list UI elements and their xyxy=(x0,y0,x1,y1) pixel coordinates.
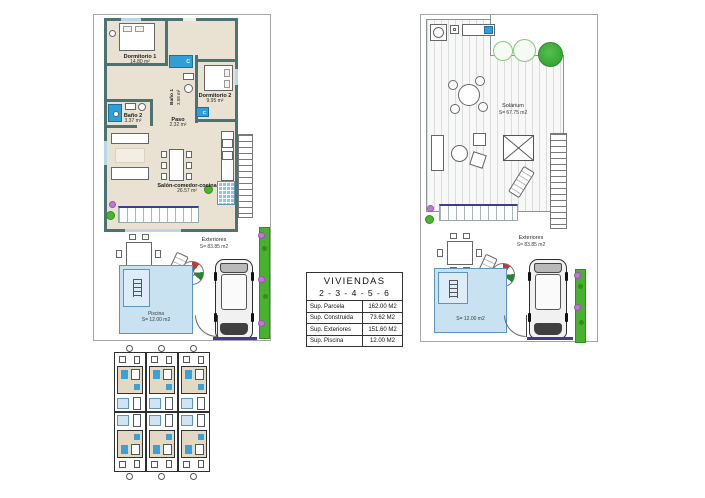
stairs-icon xyxy=(550,133,567,229)
pillow-icon xyxy=(123,26,132,32)
mini-car xyxy=(133,414,141,427)
table-subtitle: 2 - 3 - 4 - 5 - 6 xyxy=(307,288,402,298)
mini-car xyxy=(133,397,141,410)
room-label-paso: Paso 2.32 m² xyxy=(163,117,193,129)
wall xyxy=(107,125,137,128)
mini-fixture xyxy=(151,461,158,468)
exterior-area: S= 83.85 m2 xyxy=(190,244,238,251)
mini-bath xyxy=(198,434,204,440)
site-marker-icon xyxy=(190,345,197,352)
flower-icon xyxy=(427,205,434,212)
site-marker-icon xyxy=(158,473,165,480)
mini-bed xyxy=(195,369,204,380)
closet-icon: C xyxy=(169,55,193,68)
mini-car xyxy=(165,414,173,427)
mini-fixture xyxy=(151,356,158,363)
mini-fixture xyxy=(183,461,190,468)
mini-bath xyxy=(121,370,128,379)
site-unit xyxy=(178,352,210,412)
tree-icon xyxy=(513,39,536,62)
terrace-decking xyxy=(118,206,199,223)
entrance-door-gap xyxy=(183,18,196,21)
mini-building xyxy=(149,430,175,458)
mini-pool xyxy=(149,398,161,409)
mini-building xyxy=(117,430,143,458)
rooftop-basin-icon xyxy=(433,27,444,38)
skylight-icon xyxy=(503,135,534,161)
wall xyxy=(165,21,168,65)
chair-icon xyxy=(129,234,136,240)
summary-table-header: VIVIENDAS 2 - 3 - 4 - 5 - 6 xyxy=(307,273,402,300)
entrance-door-arc xyxy=(195,315,217,337)
room-area: 9.95 m² xyxy=(195,99,235,105)
row-value: 162.00 M2 xyxy=(363,301,402,312)
appliance-icon xyxy=(222,151,233,160)
wall xyxy=(150,99,153,126)
mini-bath xyxy=(166,384,172,390)
pool-steps xyxy=(438,272,468,304)
flower-icon xyxy=(258,232,265,239)
hedge-leaf xyxy=(262,246,267,251)
ground-plan-parcel: Dormitorio 1 14.80 m² C Baño 1 3.58 m² xyxy=(93,14,271,341)
chair-icon xyxy=(142,234,149,240)
site-unit xyxy=(178,412,210,472)
wheel-icon xyxy=(528,313,531,322)
chair-icon xyxy=(161,151,167,158)
sofa-icon xyxy=(111,167,149,180)
site-marker-icon xyxy=(158,345,165,352)
rooftop-fixture-icon xyxy=(430,24,447,41)
pillow-icon xyxy=(224,80,230,88)
site-plan xyxy=(114,352,210,472)
chair-icon xyxy=(186,173,192,180)
bed-icon xyxy=(204,65,233,91)
mini-fixture xyxy=(166,460,172,468)
car-icon xyxy=(215,259,253,339)
wall xyxy=(107,63,168,66)
site-unit xyxy=(146,352,178,412)
car-icon xyxy=(529,259,567,339)
wheel-icon xyxy=(528,272,531,281)
appliance-icon xyxy=(222,139,233,148)
chair-icon xyxy=(161,173,167,180)
wheel-icon xyxy=(565,313,568,322)
upper-plan-parcel: Solárium S= 67.75 m2 Exteriores S= 83.85… xyxy=(420,14,598,342)
closet-letter: C xyxy=(186,59,190,65)
bush-icon xyxy=(106,211,115,220)
site-marker-icon xyxy=(126,345,133,352)
pool-name: Piscina xyxy=(120,311,192,318)
mini-car xyxy=(197,414,205,427)
exterior-area: S= 83.85 m2 xyxy=(507,242,555,249)
flower-icon xyxy=(109,201,116,208)
tree-icon xyxy=(538,42,563,67)
flower-icon xyxy=(574,272,581,279)
vent-core xyxy=(453,28,456,31)
car-rear-window xyxy=(220,263,248,273)
exterior-name: Exteriores xyxy=(190,237,238,244)
mini-bed xyxy=(163,444,172,455)
pillow-icon xyxy=(135,26,144,32)
mini-bed xyxy=(163,369,172,380)
chair-icon xyxy=(186,162,192,169)
chair-icon xyxy=(116,250,122,258)
pool-steps xyxy=(123,269,150,307)
entrance-door-arc xyxy=(504,315,526,337)
mini-fixture xyxy=(166,356,172,364)
table-row: Sup. Construida 73.62 M2 xyxy=(307,312,402,324)
wall xyxy=(195,59,235,62)
mini-building xyxy=(117,366,143,394)
car-roof xyxy=(535,274,561,310)
vent-icon xyxy=(450,25,459,34)
car-hood xyxy=(220,323,248,335)
mini-pool xyxy=(149,415,161,426)
table-icon xyxy=(447,241,473,265)
tree-icon xyxy=(493,41,513,61)
pool-area: S= 12.00 m2 xyxy=(120,317,192,324)
sink-icon xyxy=(183,73,194,80)
mini-building xyxy=(149,366,175,394)
mini-bath xyxy=(134,384,140,390)
mini-bath xyxy=(134,434,140,440)
room-label-bano2: Baño 2 3.37 m² xyxy=(117,113,149,125)
mini-bed xyxy=(195,444,204,455)
car-roof xyxy=(221,274,247,310)
room-label-dormitorio2: Dormitorio 2 9.95 m² xyxy=(195,93,235,105)
bush-icon xyxy=(425,215,434,224)
wheel-icon xyxy=(214,272,217,281)
sofa-icon xyxy=(431,135,444,171)
row-value: 73.62 M2 xyxy=(363,313,402,324)
nightstand-icon xyxy=(109,30,116,37)
mini-fixture xyxy=(198,460,204,468)
table-title: VIVIENDAS xyxy=(307,276,402,287)
room-area: 2.32 m² xyxy=(163,123,193,129)
hedge-leaf xyxy=(263,294,268,299)
site-unit xyxy=(114,412,146,472)
summary-table: VIVIENDAS 2 - 3 - 4 - 5 - 6 Sup. Parcela… xyxy=(306,272,403,347)
pool: S= 12.00 m2 xyxy=(434,268,507,333)
patio-glass-door xyxy=(125,229,181,232)
window-icon xyxy=(104,141,107,165)
chair-icon xyxy=(448,80,458,90)
pool: Piscina S= 12.00 m2 xyxy=(119,265,193,334)
flower-icon xyxy=(258,320,265,327)
site-marker-icon xyxy=(126,473,133,480)
hedge-leaf xyxy=(579,320,584,325)
mini-bath xyxy=(153,370,160,379)
mini-bath xyxy=(166,434,172,440)
wheel-icon xyxy=(251,313,254,322)
mini-building xyxy=(181,366,207,394)
closet-icon: C xyxy=(196,107,209,117)
round-table-icon xyxy=(458,84,480,106)
window-icon xyxy=(121,18,141,21)
room-label-salon: Salón-comedor-cocina 26.57 m² xyxy=(151,183,223,195)
chair-icon xyxy=(450,233,457,239)
sink-icon xyxy=(125,103,136,110)
row-label: Sup. Construida xyxy=(307,313,363,324)
solarium-area: S= 67.75 m2 xyxy=(483,110,543,117)
row-value: 12.00 M2 xyxy=(363,336,402,347)
chair-icon xyxy=(450,104,460,114)
hedge xyxy=(575,269,586,343)
room-area: 26.57 m² xyxy=(151,189,223,195)
exterior-label: Exteriores S= 83.85 m2 xyxy=(190,237,238,251)
row-label: Sup. Parcela xyxy=(307,301,363,312)
toilet-icon xyxy=(138,103,146,111)
solarium-name: Solárium xyxy=(483,103,543,110)
mini-bath xyxy=(185,370,192,379)
driveway-gate xyxy=(213,337,257,340)
mini-bed xyxy=(131,369,140,380)
terrace-decking xyxy=(439,204,518,221)
mini-car xyxy=(165,397,173,410)
wheel-icon xyxy=(565,272,568,281)
row-label: Sup. Exteriores xyxy=(307,324,363,335)
pool-ladder-icon xyxy=(133,279,142,297)
window-icon xyxy=(235,69,238,85)
room-area: 3.58 m² xyxy=(176,69,181,105)
mini-bath xyxy=(121,445,128,454)
toilet-icon xyxy=(184,84,193,93)
armchair-icon xyxy=(473,133,486,146)
exterior-label: Exteriores S= 83.85 m2 xyxy=(507,235,555,249)
mini-fixture xyxy=(198,356,204,364)
pool-label: S= 12.00 m2 xyxy=(435,316,506,323)
driveway-gate xyxy=(527,337,573,340)
chair-icon xyxy=(475,76,485,86)
table-icon xyxy=(126,242,152,266)
table-row: Sup. Exteriores 151.60 M2 xyxy=(307,323,402,335)
site-unit xyxy=(114,352,146,412)
car-hood xyxy=(534,323,562,335)
outdoor-sink-icon xyxy=(484,26,493,34)
table-row: Sup. Piscina 12.00 M2 xyxy=(307,335,402,347)
chair-icon xyxy=(186,151,192,158)
hedge-leaf xyxy=(578,284,583,289)
wall xyxy=(107,99,153,102)
row-label: Sup. Piscina xyxy=(307,336,363,347)
closet-letter: C xyxy=(203,110,206,115)
rug-icon xyxy=(115,148,145,163)
mini-fixture xyxy=(134,460,140,468)
outdoor-kitchen-counter-icon xyxy=(462,24,495,36)
mini-building xyxy=(181,430,207,458)
chair-icon xyxy=(476,249,482,257)
car-rear-window xyxy=(534,263,562,273)
door-leaf xyxy=(526,315,527,337)
ground-building: Dormitorio 1 14.80 m² C Baño 1 3.58 m² xyxy=(104,18,238,232)
wheel-icon xyxy=(251,272,254,281)
mini-bath xyxy=(198,384,204,390)
hedge xyxy=(259,227,270,339)
room-label-bano1: Baño 1 3.58 m² xyxy=(170,69,181,105)
mini-bed xyxy=(131,444,140,455)
sofa-icon xyxy=(111,133,149,144)
pillow-icon xyxy=(224,69,230,77)
stairs-icon xyxy=(238,134,253,218)
flower-icon xyxy=(258,276,265,283)
wall xyxy=(195,119,235,122)
mini-fixture xyxy=(183,356,190,363)
mini-bath xyxy=(153,445,160,454)
chair-icon xyxy=(161,162,167,169)
mini-pool xyxy=(181,398,193,409)
mini-fixture xyxy=(134,356,140,364)
outdoor-dining-set-icon xyxy=(437,233,483,273)
chair-icon xyxy=(155,250,161,258)
mini-pool xyxy=(117,415,129,426)
table-row: Sup. Parcela 162.00 M2 xyxy=(307,300,402,312)
flower-icon xyxy=(574,304,581,311)
site-unit xyxy=(146,412,178,472)
dining-table-icon xyxy=(169,149,184,181)
mini-pool xyxy=(117,398,129,409)
site-marker-icon xyxy=(190,473,197,480)
chair-icon xyxy=(437,249,443,257)
mini-car xyxy=(197,397,205,410)
floorplan-sheet: Dormitorio 1 14.80 m² C Baño 1 3.58 m² xyxy=(0,0,705,498)
exterior-name: Exteriores xyxy=(507,235,555,242)
mini-fixture xyxy=(119,461,126,468)
mini-fixture xyxy=(119,356,126,363)
door-leaf xyxy=(217,315,218,337)
coffee-table-icon xyxy=(451,145,468,162)
pool-area: S= 12.00 m2 xyxy=(435,316,506,323)
chair-icon xyxy=(463,233,470,239)
mini-bath xyxy=(185,445,192,454)
solarium-label: Solárium S= 67.75 m2 xyxy=(483,103,543,117)
bed-icon xyxy=(119,23,155,51)
pool-ladder-icon xyxy=(449,280,458,298)
row-value: 151.60 M2 xyxy=(363,324,402,335)
mini-pool xyxy=(181,415,193,426)
pool-label: Piscina S= 12.00 m2 xyxy=(120,311,192,325)
